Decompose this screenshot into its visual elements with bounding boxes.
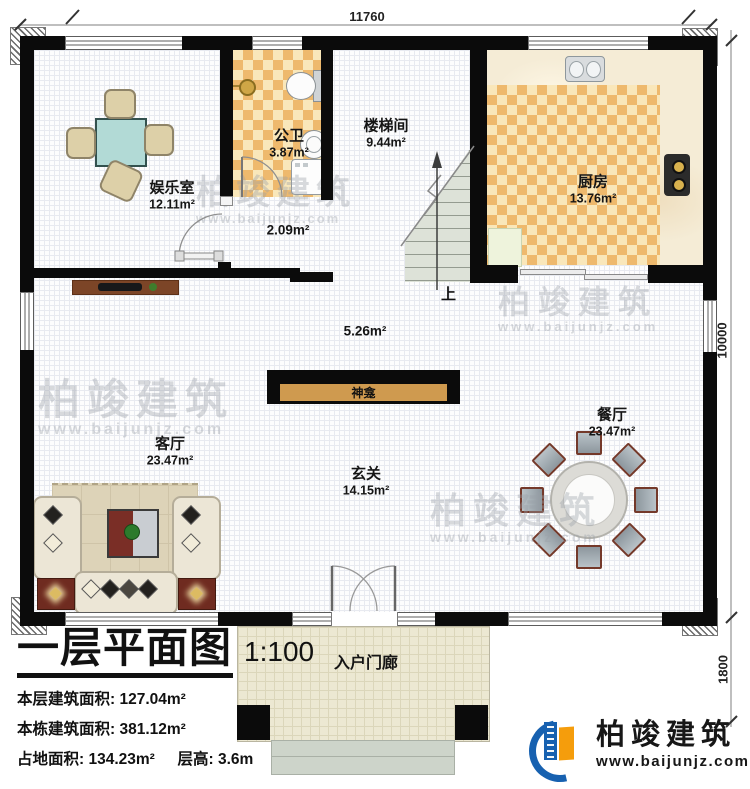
- room-label-corridor: 5.26m²: [344, 323, 387, 338]
- room-label-entertainment: 娱乐室 12.11m²: [149, 181, 195, 212]
- room-label-hallway: 2.09m²: [267, 222, 310, 237]
- logo-brand: 柏竣建筑: [596, 720, 749, 752]
- plan-scale: 1:100: [244, 636, 314, 668]
- dim-right: 10000: [715, 311, 730, 371]
- stat-floor-area: 本层建筑面积: 127.04m²: [17, 687, 314, 709]
- floor-plan-canvas: 柏竣建筑 www.baijunjz.com 柏竣建筑 www.baijunjz.…: [0, 0, 750, 789]
- logo-building-blue: [544, 722, 557, 760]
- room-label-stairwell: 楼梯间 9.44m²: [363, 119, 408, 150]
- dim-top: 11760: [337, 9, 397, 24]
- logo-site: www.baijunjz.com: [596, 753, 749, 770]
- logo-text: 柏竣建筑 www.baijunjz.com: [596, 720, 749, 770]
- stair-up-arrow: [432, 151, 442, 168]
- stat-building-area: 本栋建筑面积: 381.12m²: [17, 717, 314, 739]
- room-label-foyer: 玄关 14.15m²: [343, 467, 390, 498]
- title-block: 一层平面图 1:100 本层建筑面积: 127.04m² 本栋建筑面积: 381…: [17, 626, 314, 777]
- plan-title: 一层平面图: [17, 626, 232, 670]
- stat-footprint-height: 占地面积: 134.23m² 层高: 3.6m: [17, 747, 314, 769]
- logo-building-orange: [559, 726, 574, 760]
- room-label-bathroom: 公卫 3.87m²: [269, 129, 309, 160]
- dim-porch: 1800: [716, 641, 731, 699]
- stairs-up-label: 上: [441, 283, 456, 304]
- room-label-porch: 入户门廊: [334, 655, 398, 673]
- logo-building-icon: [528, 714, 588, 776]
- title-underline: [17, 673, 233, 678]
- room-label-kitchen: 厨房 13.76m²: [570, 175, 617, 206]
- room-label-living: 客厅 23.47m²: [147, 437, 194, 468]
- plan-stats: 本层建筑面积: 127.04m² 本栋建筑面积: 381.12m² 占地面积: …: [17, 687, 314, 769]
- door-swing: [242, 157, 282, 197]
- company-logo: 柏竣建筑 www.baijunjz.com: [528, 714, 749, 776]
- room-label-dining: 餐厅 23.47m²: [589, 408, 636, 439]
